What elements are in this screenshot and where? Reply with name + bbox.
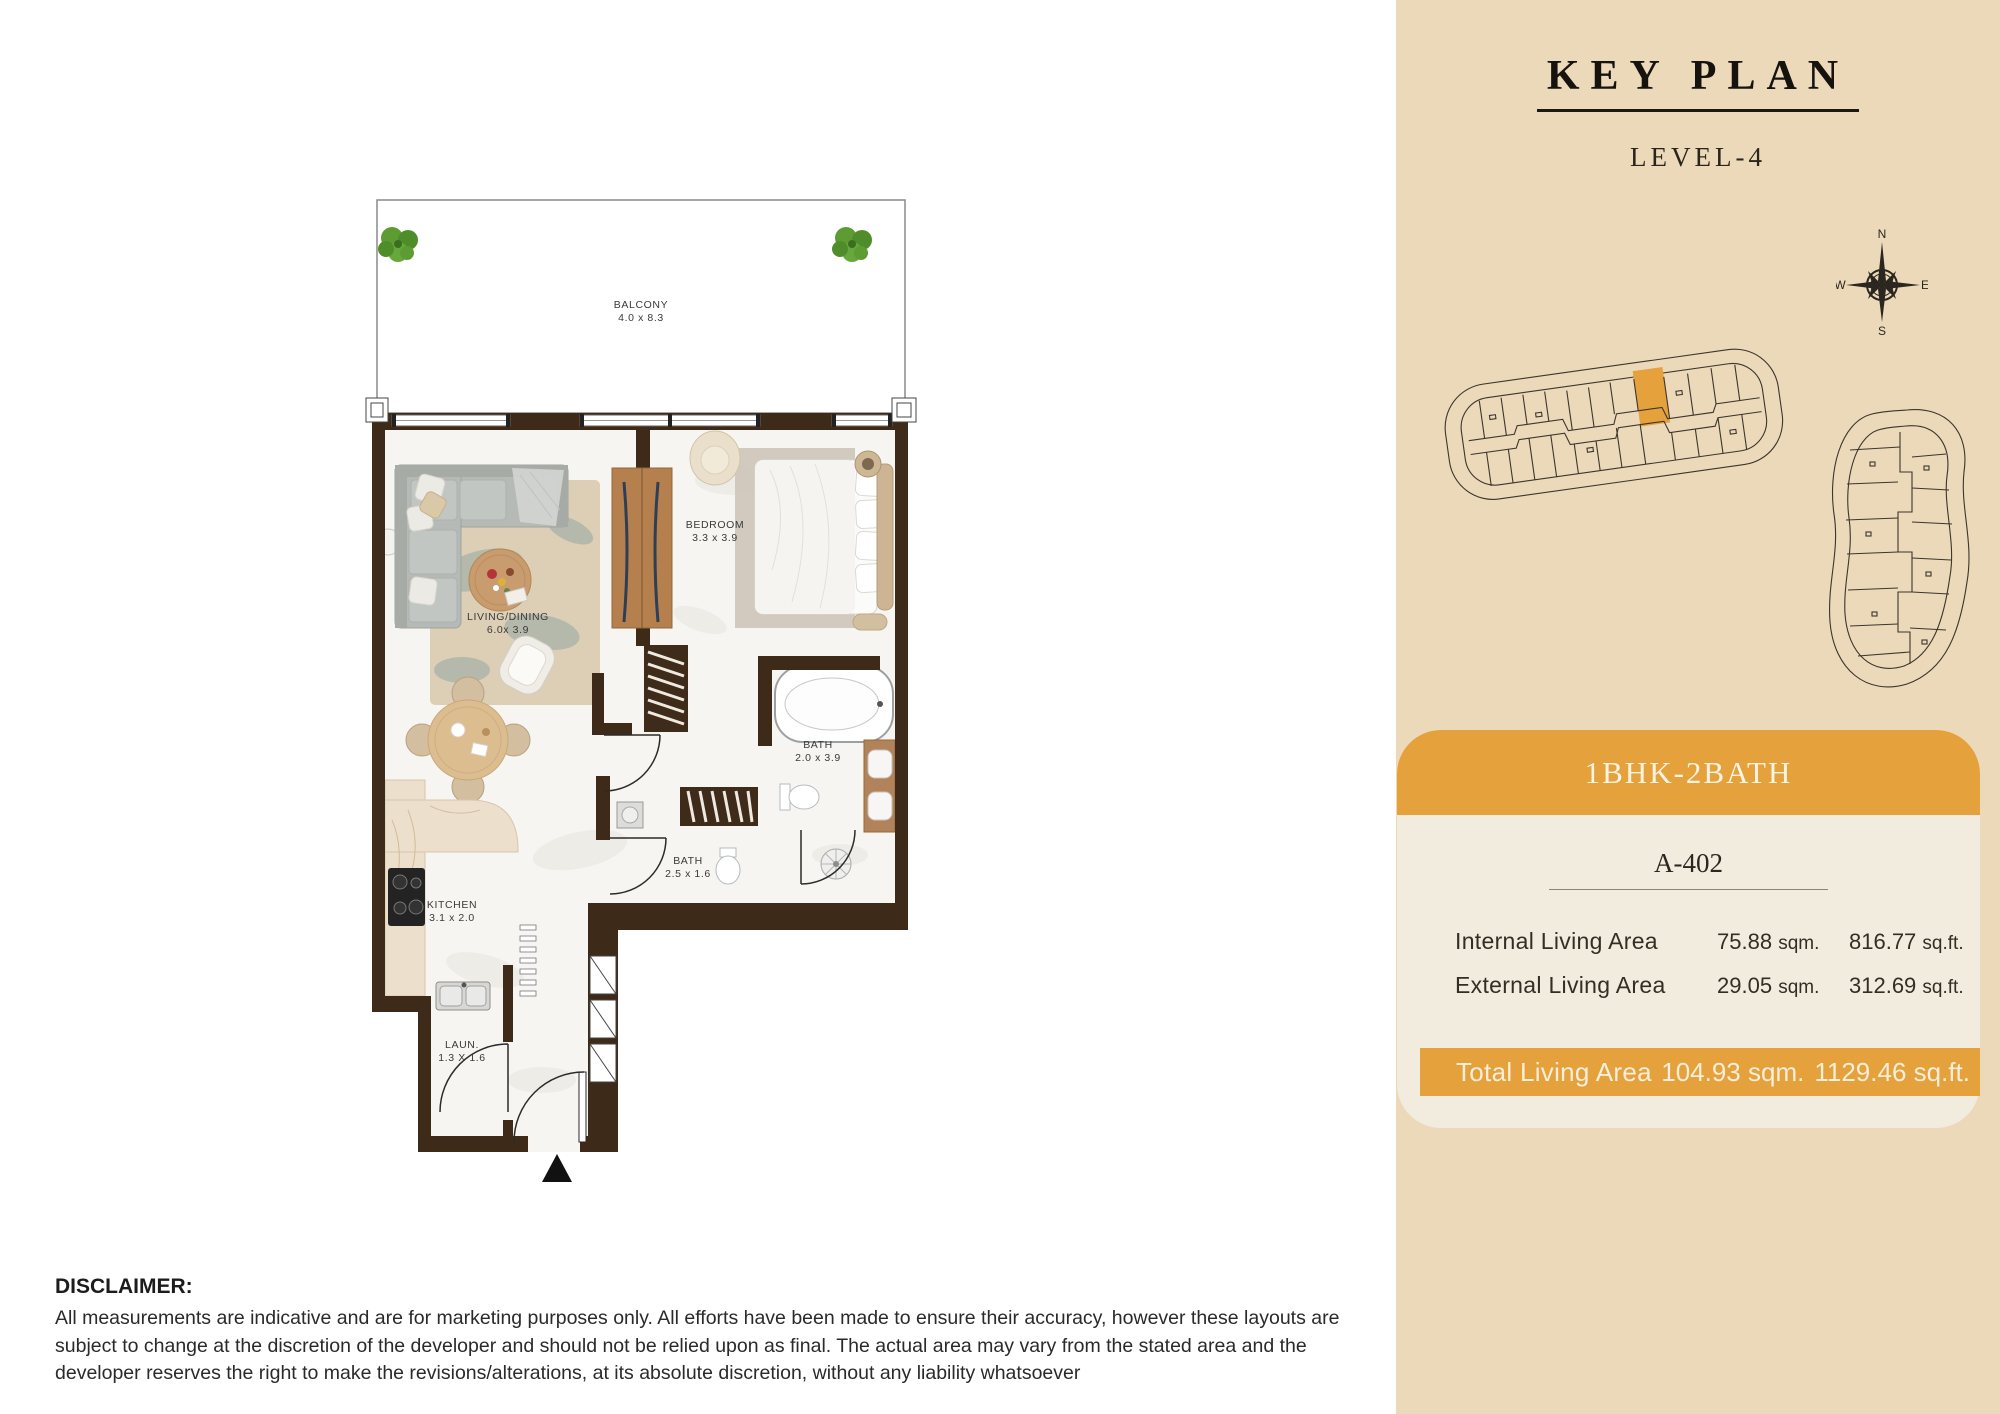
- toilet-icon: [780, 784, 819, 810]
- unit-number: A-402: [1397, 848, 1980, 890]
- room-dims: 2.0 x 3.9: [795, 752, 841, 764]
- total-sqm-value: 104.93: [1661, 1057, 1741, 1087]
- area-sqm-unit: sqm.: [1778, 977, 1819, 998]
- room-label: BATH: [673, 855, 703, 867]
- internal-area-row: Internal Living Area 75.88 sqm. 816.77 s…: [1397, 928, 1980, 955]
- compass-n: N: [1878, 228, 1887, 241]
- key-plan-building-2: [1812, 402, 1997, 702]
- room-label: BATH: [803, 739, 833, 751]
- unit-type-label: 1BHK-2BATH: [1585, 755, 1793, 791]
- room-label: KITCHEN: [427, 899, 477, 911]
- hob-icon: [388, 868, 425, 926]
- compass-s: S: [1878, 324, 1886, 336]
- disclaimer: DISCLAIMER: All measurements are indicat…: [55, 1275, 1370, 1388]
- total-area-label: Total Living Area: [1420, 1057, 1661, 1088]
- room-dims: 4.0 x 8.3: [618, 312, 664, 324]
- disclaimer-body: All measurements are indicative and are …: [55, 1305, 1370, 1388]
- total-area-band: Total Living Area 104.93 sqm. 1129.46 sq…: [1420, 1048, 1980, 1096]
- wardrobe: [612, 468, 672, 628]
- key-plan-building-1: [1432, 330, 1800, 520]
- area-sqm-value: 75.88: [1717, 929, 1772, 954]
- key-plan-panel: KEY PLAN LEVEL-4: [1396, 0, 2000, 1414]
- room-label: BEDROOM: [686, 519, 744, 531]
- unit-info-card: 1BHK-2BATH A-402 Internal Living Area 75…: [1397, 730, 1980, 1128]
- area-sqft-unit: sq.ft.: [1922, 977, 1963, 998]
- total-sqft-unit: sq.ft.: [1914, 1057, 1970, 1087]
- pot-plant: [855, 451, 881, 477]
- room-label: LIVING/DINING: [467, 611, 549, 623]
- balcony: BALCONY 4.0 x 8.3: [377, 200, 905, 413]
- bedroom-armchair: [690, 431, 740, 485]
- total-sqft-value: 1129.46: [1814, 1057, 1906, 1087]
- room-dims: 2.5 x 1.6: [665, 868, 711, 880]
- area-sqm-unit: sqm.: [1778, 933, 1819, 954]
- room-dims: 6.0x 3.9: [487, 624, 529, 636]
- bench: [853, 614, 887, 630]
- slat-cabinet: [680, 787, 758, 826]
- area-label: External Living Area: [1397, 972, 1717, 999]
- unit-type-banner: 1BHK-2BATH: [1397, 730, 1980, 815]
- area-sqft-value: 312.69: [1849, 973, 1916, 998]
- sink-icon: [436, 982, 490, 1010]
- compass-w: W: [1836, 278, 1846, 292]
- key-plan-title: KEY PLAN: [1396, 52, 2000, 112]
- shaft-vents: [590, 956, 616, 1082]
- entrance-arrow: [542, 1154, 572, 1182]
- coffee-table: [469, 549, 531, 611]
- compass-icon: N S W E: [1836, 228, 1928, 336]
- highlighted-unit: [1633, 367, 1671, 427]
- room-dims: 3.3 x 3.9: [692, 532, 738, 544]
- headboard: [877, 464, 893, 610]
- compass-e: E: [1921, 278, 1928, 292]
- key-plan-level: LEVEL-4: [1396, 142, 2000, 173]
- area-sqft-unit: sq.ft.: [1922, 933, 1963, 954]
- room-dims: 1.3 X 1.6: [438, 1052, 485, 1064]
- page: BALCONY 4.0 x 8.3: [0, 0, 2000, 1414]
- floor-plan: BALCONY 4.0 x 8.3: [280, 150, 960, 1230]
- room-label: LAUN.: [445, 1039, 479, 1051]
- area-sqft-value: 816.77: [1849, 929, 1916, 954]
- disclaimer-title: DISCLAIMER:: [55, 1275, 1370, 1299]
- linen-closet: [644, 645, 688, 732]
- unit-number-label: A-402: [1549, 848, 1828, 890]
- room-label: BALCONY: [614, 299, 668, 311]
- area-label: Internal Living Area: [1397, 928, 1717, 955]
- toilet-icon: [716, 848, 740, 884]
- external-area-row: External Living Area 29.05 sqm. 312.69 s…: [1397, 972, 1980, 999]
- total-sqm-unit: sqm.: [1748, 1057, 1804, 1087]
- shower-drain-icon: [821, 849, 851, 879]
- room-dims: 3.1 x 2.0: [429, 912, 475, 924]
- area-sqm-value: 29.05: [1717, 973, 1772, 998]
